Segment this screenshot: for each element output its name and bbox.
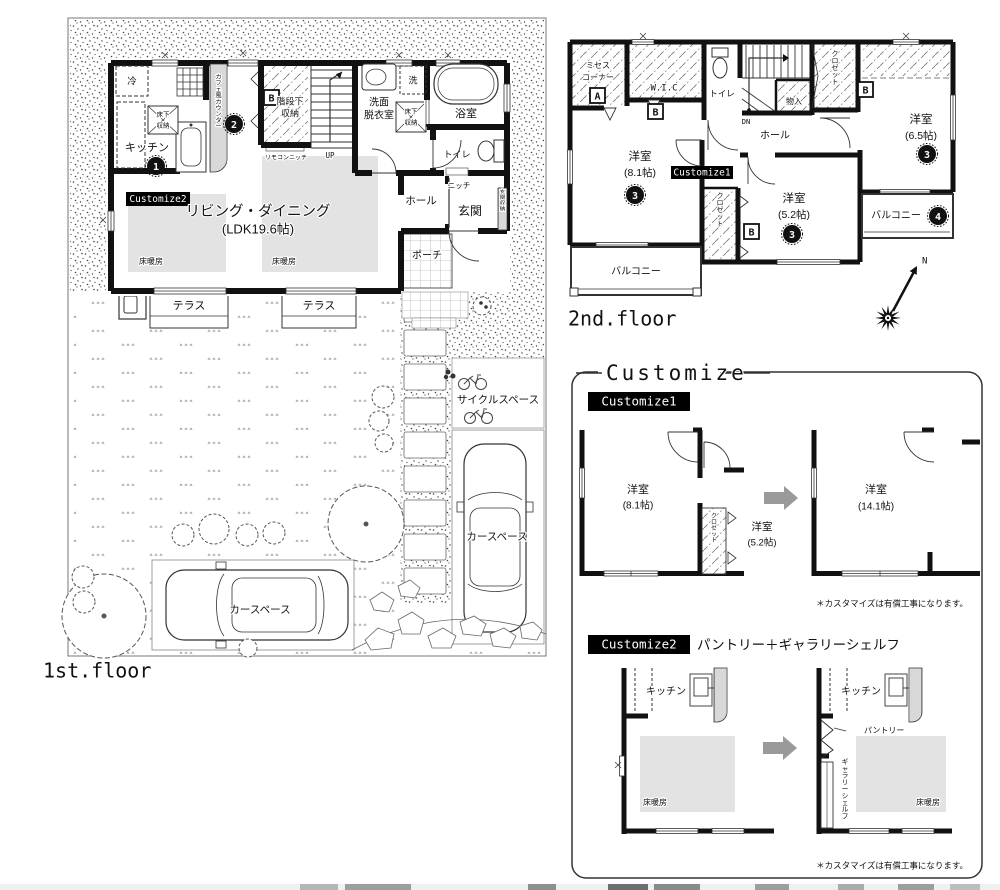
bath-label: 浴室 (455, 106, 477, 120)
car-space-label: カースペース (229, 604, 290, 616)
pantry-label: パントリー (864, 726, 904, 735)
floor-heating-label: 床暖房 (139, 256, 163, 266)
kitchen-label: キッチン (841, 686, 881, 698)
floor-heating-label: 床暖房 (643, 797, 667, 807)
terrace-label: テラス (303, 300, 336, 312)
customize2-heading: パントリー＋ギャラリーシェルフ (697, 638, 900, 653)
porch-label: ポーチ (412, 250, 442, 262)
balcony-left: バルコニー (570, 247, 701, 296)
underfloor-label: 床下 (405, 107, 419, 116)
car-space-left: カースペース (152, 560, 354, 650)
customize1-tag-label: Customize1 (601, 394, 676, 409)
fridge-label: 冷 (127, 76, 137, 88)
callout-number: 3 (924, 150, 930, 161)
washer-label: 洗 (408, 74, 417, 85)
hall-label: ホール (760, 130, 790, 142)
mrs-corner-label: コーナー (582, 73, 614, 82)
niche-label: ニッチ (448, 181, 471, 190)
niche (446, 168, 468, 175)
mrs-corner-label: ミセス (586, 61, 610, 70)
room-label: 洋室 (627, 482, 649, 496)
customize1-tag: Customize1 (671, 166, 733, 179)
callout-number: 1 (153, 162, 159, 173)
second-floor-label: 2nd.floor (568, 307, 676, 331)
washroom-label: 脱衣室 (364, 109, 394, 122)
balcony-right: バルコニー 4 (862, 194, 953, 238)
cycle-space-label: サイクルスペース (457, 394, 539, 406)
hall-label: ホール (405, 195, 437, 207)
counter-icon (909, 668, 922, 722)
bottom-strip (0, 884, 1000, 890)
car-space-label: カースペース (466, 531, 527, 543)
terrace-label: テラス (173, 300, 206, 312)
approach-tiles (412, 318, 456, 328)
counter-label: カフェ風カウンター (215, 74, 221, 131)
closet-label: クロゼット (717, 192, 724, 228)
gallery-shelf-label: ギャラリーシェルフ (842, 758, 849, 820)
underfloor-storage-icon: 床下 収納 (396, 102, 426, 132)
washroom-label: 洗面 (369, 97, 389, 109)
stair-storage-label: 収納 (281, 107, 299, 118)
room-size-label: (5.2帖) (747, 537, 776, 549)
callout-number: 3 (632, 191, 638, 202)
compass-north-icon: N (875, 257, 927, 332)
marker-b: B (862, 86, 868, 97)
floor-heating-label: 床暖房 (272, 256, 296, 266)
closet-label: クロゼット (711, 513, 717, 544)
storage-label: 物入 (786, 96, 802, 106)
sink-icon (176, 122, 206, 172)
toilet-label: トイレ (709, 88, 735, 98)
customize1-tag-label: Customize1 (673, 168, 730, 179)
marker-b-box: B (858, 82, 873, 97)
first-floor-plan: テラス テラス サイクルスペース (43, 18, 546, 683)
balcony-label: バルコニー (871, 210, 921, 222)
kitchen-label: キッチン (125, 141, 169, 154)
room-label: 洋室 (752, 520, 773, 533)
living-size-label: (LDK19.6帖) (222, 221, 294, 236)
marker-b-box-mid: B (744, 224, 759, 239)
room-label: 洋室 (910, 112, 933, 126)
stepping-stones (404, 296, 446, 594)
room-size-label: (6.5帖) (905, 129, 937, 142)
stove-icon (177, 68, 203, 96)
room-size-label: (8.1帖) (624, 166, 656, 179)
underfloor-label: 収納 (405, 118, 418, 127)
marker-b: B (268, 94, 274, 105)
north-label: N (922, 257, 927, 267)
shutter-x-icons (640, 33, 909, 39)
room-label: 洋室 (865, 482, 887, 496)
cycle-space: サイクルスペース (452, 358, 544, 428)
wic-label: W.I.C (650, 84, 677, 94)
floorplan-canvas: テラス テラス サイクルスペース (0, 0, 1000, 890)
underfloor-label: 収納 (157, 121, 170, 130)
toilet-icon (478, 140, 504, 162)
underfloor-label: 床下 (157, 110, 171, 119)
bathtub-icon (434, 64, 498, 104)
washbasin-icon (362, 64, 396, 90)
stove-icon (690, 674, 714, 706)
room-label: 洋室 (629, 149, 652, 163)
callout-number: 2 (231, 120, 237, 131)
customize-panel: Customize Customize1 洋室 (8.1帖) クロゼット 洋室 … (572, 361, 982, 878)
floor-heating-label: 床暖房 (916, 797, 940, 807)
callout-number: 4 (935, 212, 941, 223)
customize2-tag-label: Customize2 (129, 194, 186, 205)
customize-note: ＊カスタマイズは有償工事になります。 (816, 860, 968, 870)
entrance-label: 玄関 (458, 203, 482, 218)
up-label: UP (325, 151, 335, 160)
second-floor-plan: DN トイレ ミセス コーナー A (568, 33, 957, 331)
balcony-label: バルコニー (611, 266, 661, 278)
room-size-label: (14.1帖) (858, 500, 894, 513)
marker-b: B (652, 108, 658, 119)
room-size-label: (5.2帖) (778, 208, 810, 221)
counter-icon (714, 668, 727, 722)
approach-tiles (402, 292, 468, 318)
garden-faucet-icon (119, 292, 146, 319)
customize-note: ＊カスタマイズは有償工事になります。 (816, 598, 968, 608)
room-size-label: (8.1帖) (623, 499, 654, 512)
underfloor-storage-icon: 床下 収納 (148, 106, 178, 134)
marker-b: B (748, 228, 754, 239)
stove-icon (885, 674, 909, 706)
floorplan-page: テラス テラス サイクルスペース (0, 0, 1000, 890)
car-space-right: カースペース (452, 430, 544, 644)
kitchen-label: キッチン (646, 686, 686, 698)
closet-label: クロゼット (832, 50, 839, 86)
first-floor-label: 1st.floor (43, 659, 151, 683)
stair-storage-label: 階段下 (276, 95, 303, 106)
toilet-icon (712, 48, 728, 78)
customize2-tag-label: Customize2 (601, 637, 676, 652)
room-label: 洋室 (783, 191, 806, 205)
callout-number: 3 (789, 230, 795, 241)
marker-a: A (594, 92, 600, 103)
dn-label: DN (742, 118, 750, 126)
living-label: リビング・ダイニング (186, 203, 331, 220)
customize-title: Customize (606, 361, 747, 385)
entrance-storage-label: 玄関収納 (500, 188, 506, 213)
remote-niche-label: リモコンニッチ (265, 155, 307, 162)
